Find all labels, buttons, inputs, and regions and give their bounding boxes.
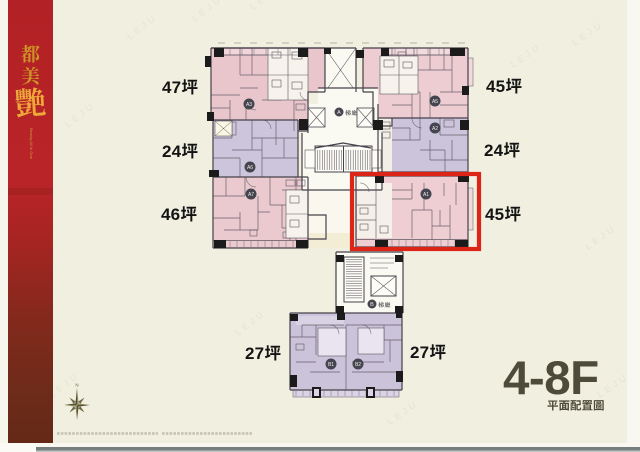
svg-text:24: 24: [484, 141, 504, 160]
svg-text:A6: A6: [247, 165, 253, 171]
svg-text:45: 45: [486, 77, 505, 96]
svg-text:Beauty All In One: Beauty All In One: [29, 128, 33, 159]
svg-text:47: 47: [162, 78, 181, 97]
svg-text:A1: A1: [423, 192, 429, 198]
svg-text:A: A: [337, 110, 341, 116]
svg-text:B1: B1: [328, 362, 334, 368]
svg-text:4-8F: 4-8F: [503, 352, 599, 405]
svg-text:N: N: [75, 383, 78, 388]
svg-text:27: 27: [410, 343, 429, 362]
svg-text:46: 46: [161, 205, 180, 224]
svg-text:B2: B2: [355, 362, 361, 368]
svg-text:24: 24: [162, 142, 182, 161]
svg-text:45: 45: [485, 205, 504, 224]
svg-text:A3: A3: [246, 102, 252, 108]
svg-text:27: 27: [245, 344, 264, 363]
svg-text:A5: A5: [432, 99, 438, 105]
svg-text:A7: A7: [248, 192, 254, 198]
svg-text:A2: A2: [432, 126, 438, 132]
svg-text:B: B: [370, 302, 374, 308]
